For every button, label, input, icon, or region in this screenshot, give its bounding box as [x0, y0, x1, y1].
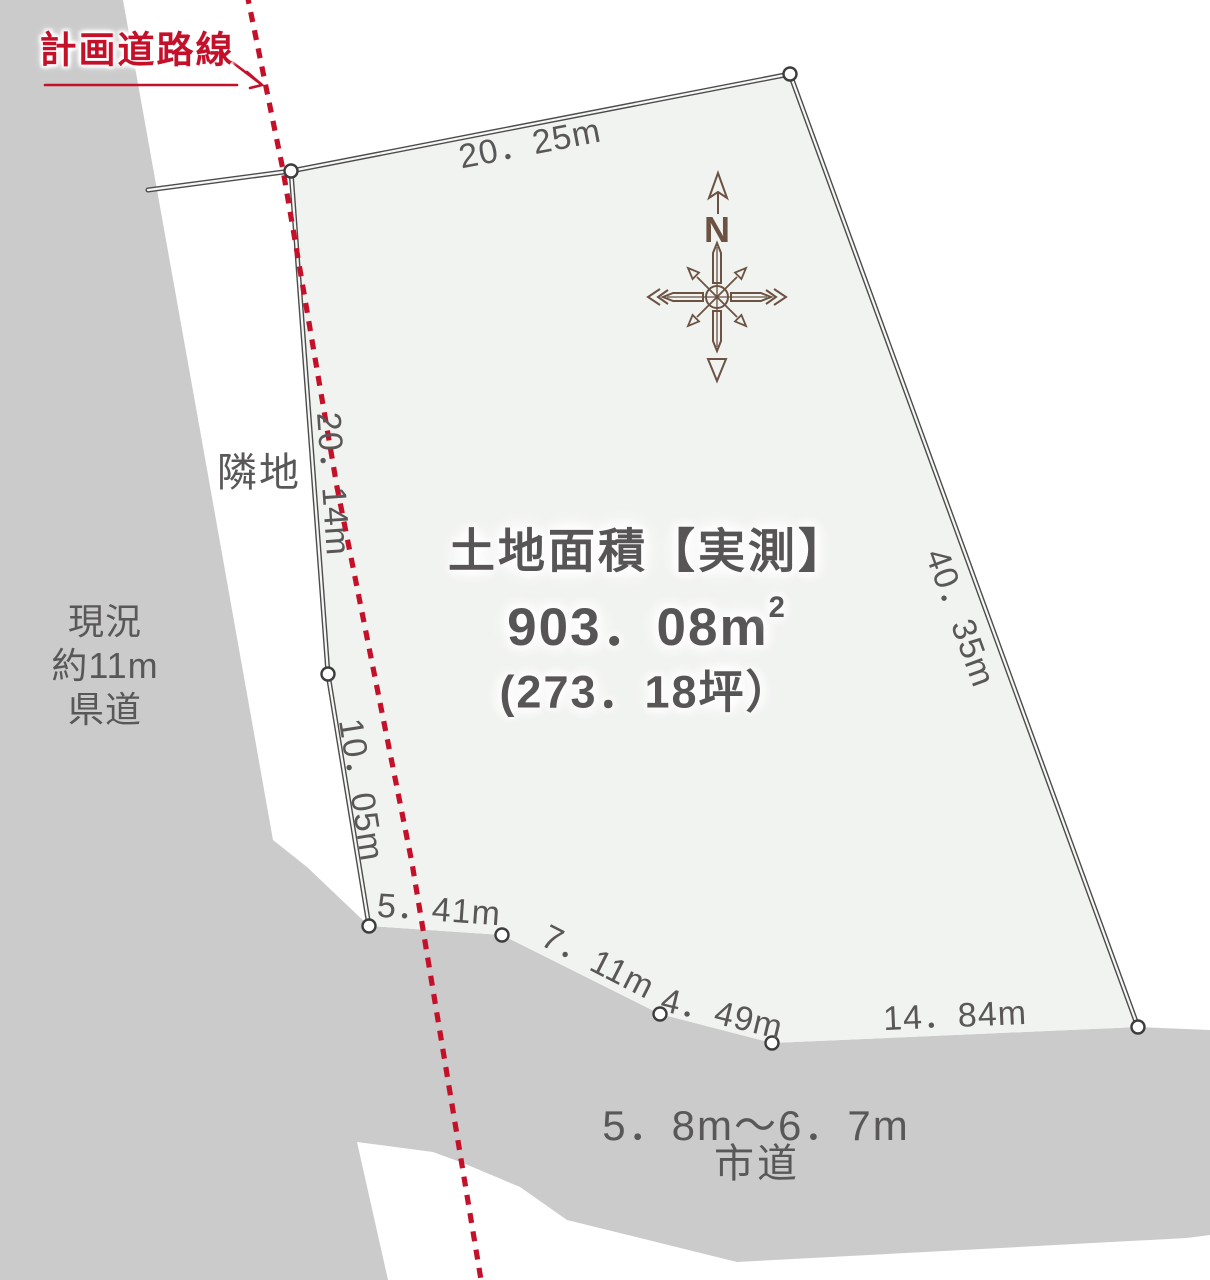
prefectural-road-line1: 現況: [51, 600, 158, 644]
planned-road-label: 計画道路線: [40, 32, 235, 69]
dimension-bottom-a: 5．41m: [376, 889, 502, 932]
land-area-tsubo: (273．18坪）: [499, 670, 792, 715]
city-road-width-label: 5．8m〜6．7m: [602, 1105, 909, 1147]
dimension-left-upper: 20．14m: [311, 411, 355, 557]
land-area-sqm-sup: 2: [769, 592, 785, 624]
prefectural-road-label: 現況 約11m 県道: [51, 600, 158, 732]
prefectural-road-line2: 約11m: [51, 644, 158, 688]
land-area-sqm-value: 903．08m: [507, 598, 769, 657]
land-area-sqm: 903．08m2: [507, 594, 785, 654]
city-road-name-label: 市道: [714, 1144, 800, 1184]
dimension-bottom-d: 14．84m: [882, 996, 1027, 1036]
land-area-title: 土地面積【実測】: [448, 528, 848, 575]
site-plan-diagram: N: [0, 0, 1210, 1280]
neighbor-lot-label: 隣地: [217, 453, 301, 493]
prefectural-road-line3: 県道: [51, 688, 158, 732]
